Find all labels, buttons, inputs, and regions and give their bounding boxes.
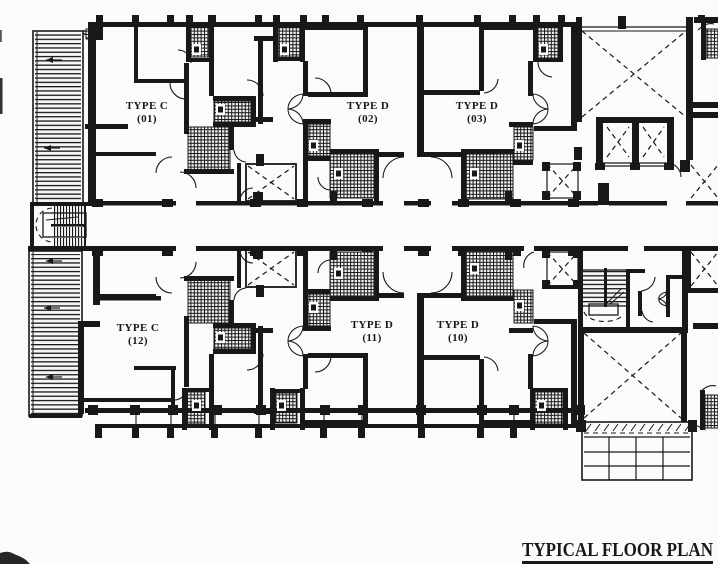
svg-text:TYPE D: TYPE D — [456, 100, 498, 112]
svg-text:TYPE D: TYPE D — [347, 100, 389, 112]
svg-text:TYPE C: TYPE C — [117, 322, 159, 334]
svg-text:(03): (03) — [467, 113, 487, 125]
svg-text:(02): (02) — [358, 113, 378, 125]
svg-text:TYPE D: TYPE D — [437, 319, 479, 331]
svg-text:TYPICAL FLOOR PLAN: TYPICAL FLOOR PLAN — [522, 539, 713, 561]
svg-text:TYPE C: TYPE C — [126, 100, 168, 112]
svg-text:(11): (11) — [362, 332, 381, 344]
svg-text:(12): (12) — [128, 335, 148, 347]
svg-text:TYPE D: TYPE D — [351, 319, 393, 331]
svg-text:(10): (10) — [448, 332, 468, 344]
svg-text:(01): (01) — [137, 113, 157, 125]
